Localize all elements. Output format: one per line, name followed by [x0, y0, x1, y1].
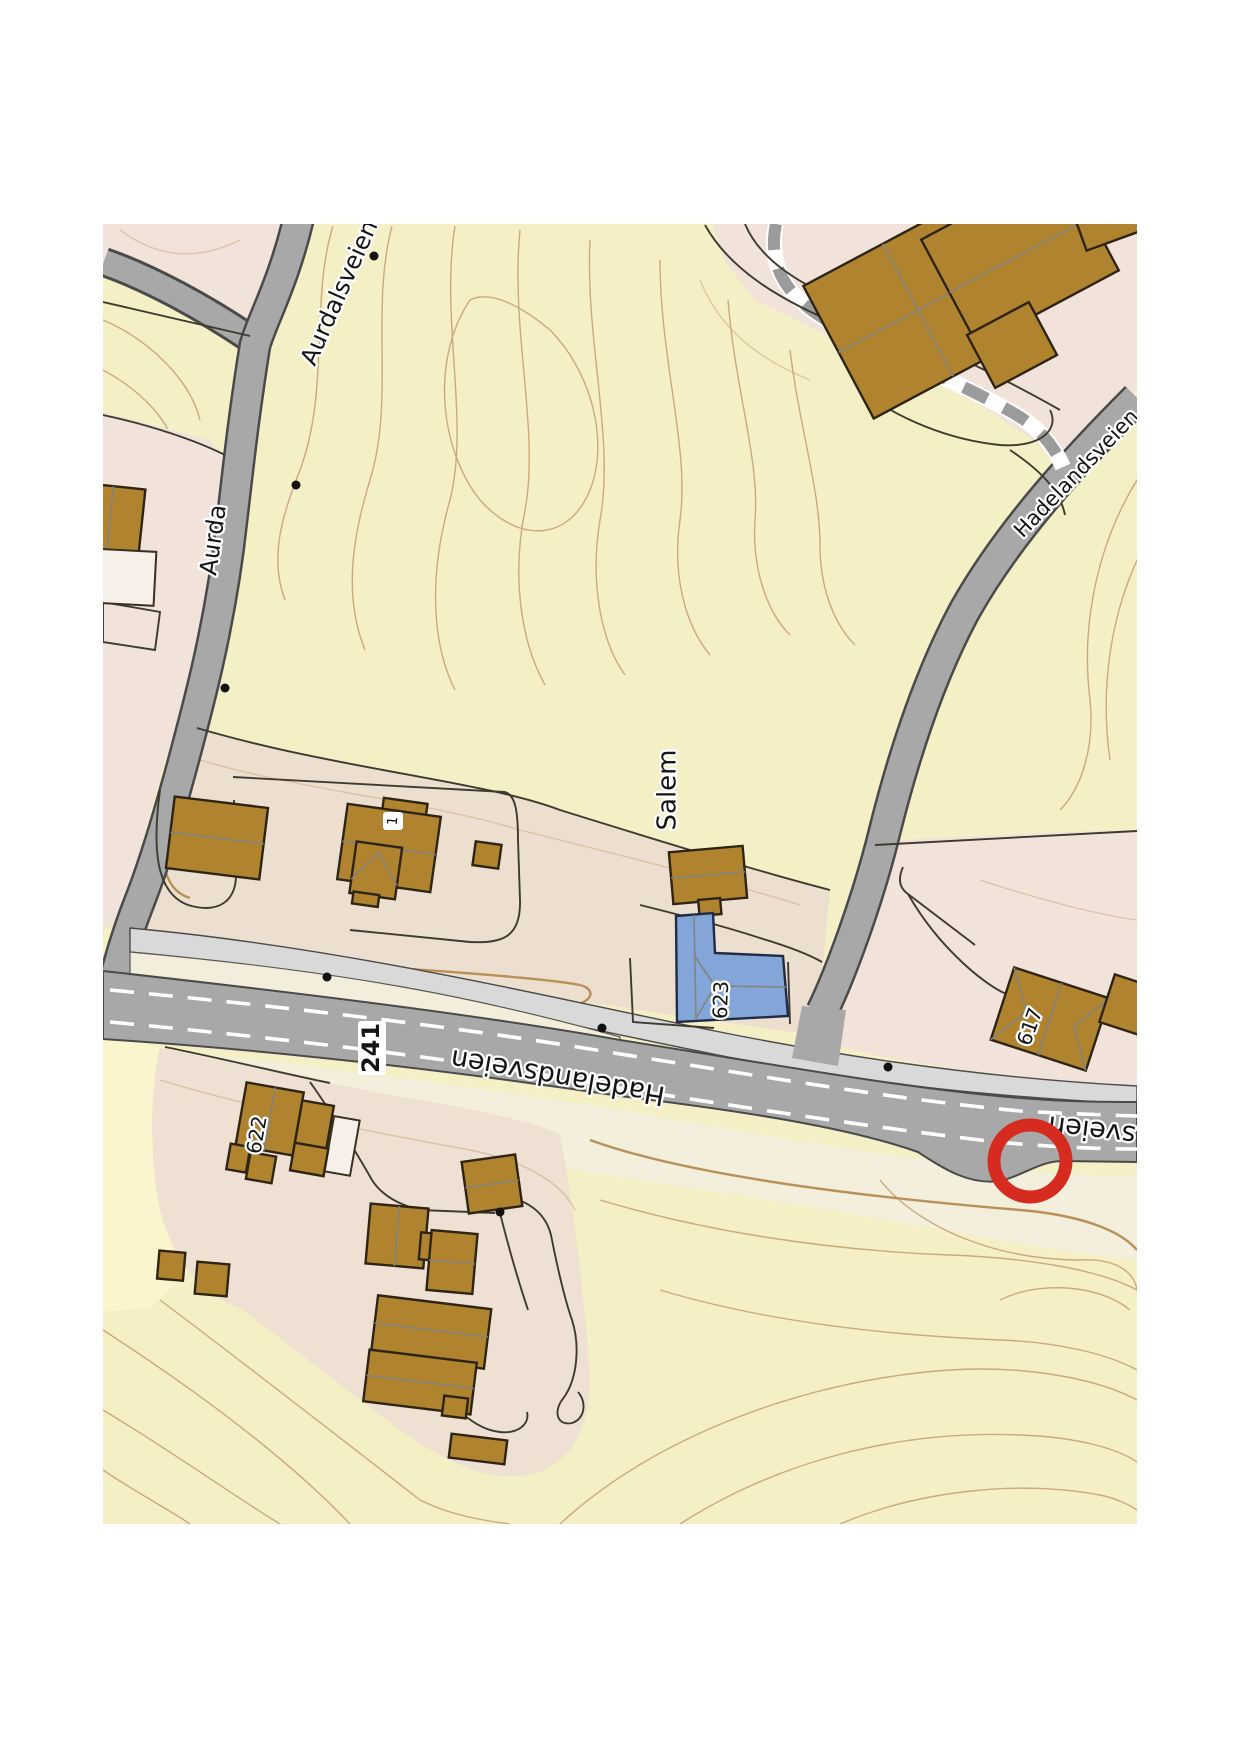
map-canvas[interactable]: Aurdalsveien Aurda Hadelandsveien Hadela… — [0, 0, 1240, 1753]
building-south-4 — [426, 1230, 477, 1294]
building-shed-b — [195, 1262, 230, 1297]
building-corner — [1072, 185, 1153, 250]
route-badge-241-text: 241 — [357, 1023, 385, 1073]
map-viewport[interactable]: Aurdalsveien Aurda Hadelandsveien Hadela… — [0, 0, 1240, 1753]
building-south-5 — [442, 1396, 468, 1419]
route-badge-241: 241 — [357, 1021, 386, 1075]
house-number-623: 623 — [708, 980, 733, 1019]
building-left-outline — [84, 548, 157, 606]
house-number-1: 1 — [385, 816, 402, 826]
building-small-shed — [472, 841, 501, 868]
building-shed-a — [157, 1251, 185, 1281]
building-south-1 — [462, 1154, 523, 1213]
building-south-6 — [449, 1434, 508, 1465]
house-number-1-badge: 1 — [383, 812, 403, 830]
building-left-edge — [75, 483, 146, 557]
place-label-salem: Salem — [653, 750, 683, 831]
building-middle-west — [166, 797, 268, 880]
